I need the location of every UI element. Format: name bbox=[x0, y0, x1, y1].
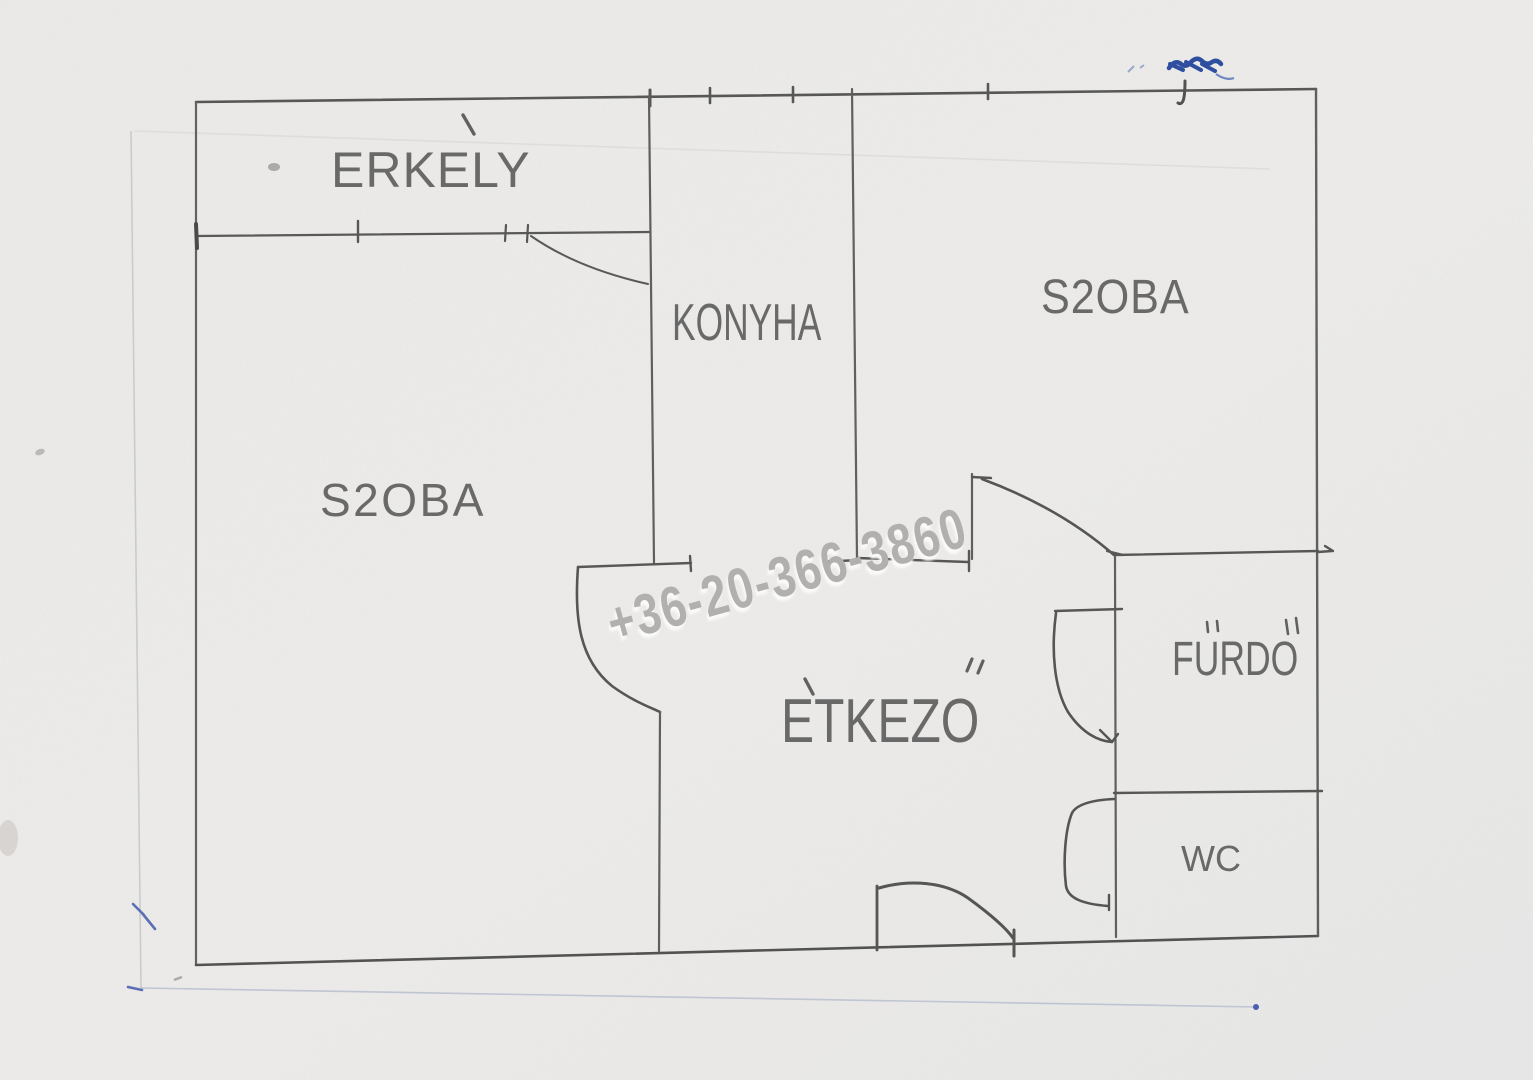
svg-text:KONYHA: KONYHA bbox=[672, 294, 822, 351]
svg-text:WC: WC bbox=[1181, 838, 1241, 879]
svg-text:ERKELY: ERKELY bbox=[331, 142, 531, 198]
svg-text:FURDO: FURDO bbox=[1172, 632, 1298, 685]
svg-text:ETKEZO: ETKEZO bbox=[781, 686, 979, 756]
svg-text:S2OBA: S2OBA bbox=[1041, 270, 1190, 324]
svg-text:S2OBA: S2OBA bbox=[320, 474, 486, 526]
